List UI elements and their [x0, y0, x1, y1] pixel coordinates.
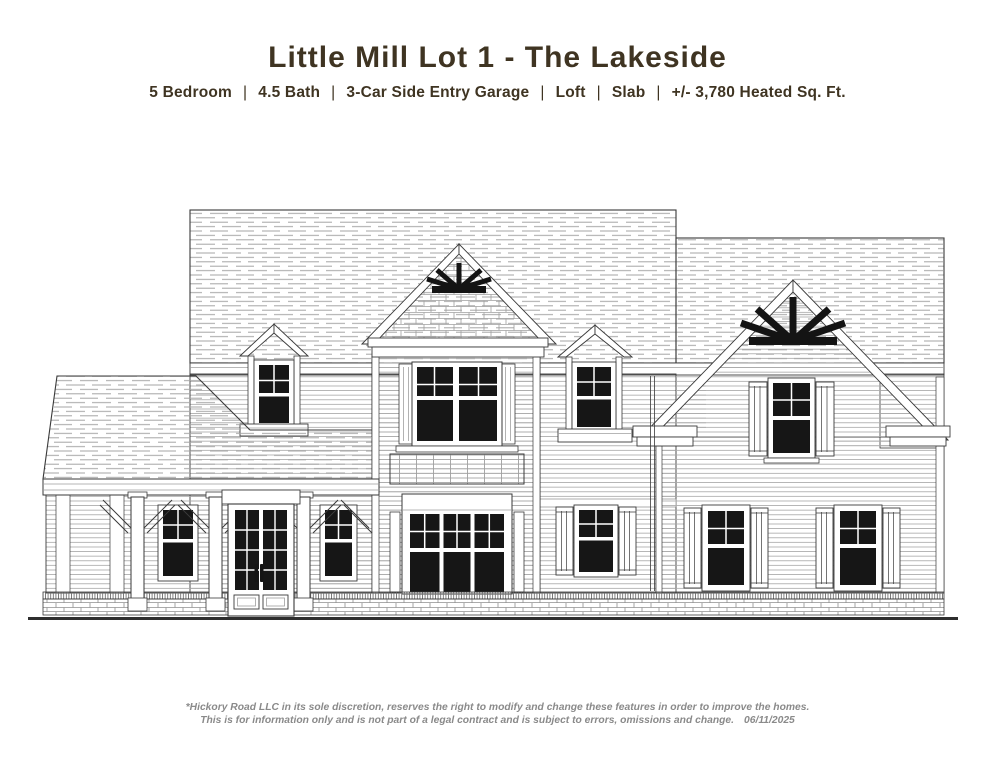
house-front-elevation — [0, 0, 995, 768]
cornice-band — [372, 347, 544, 357]
porch-window-right — [320, 505, 357, 581]
shutter — [556, 507, 573, 575]
revision-date: 06/11/2025 — [744, 715, 795, 726]
shutter — [684, 508, 701, 588]
dormer-window — [572, 362, 616, 432]
middle-window — [556, 505, 636, 577]
lower-triple-window — [390, 494, 524, 594]
dormer-window — [254, 360, 294, 428]
gable-window — [749, 378, 834, 463]
disclaimer-line-2: This is for information only and is not … — [0, 714, 995, 727]
elevation-sheet: Little Mill Lot 1 - The Lakeside 5 Bedro… — [0, 0, 995, 768]
eave-return — [886, 426, 950, 446]
front-door — [222, 490, 300, 616]
porch-post — [128, 492, 147, 611]
shutter — [751, 508, 768, 588]
garage-window-right — [816, 505, 900, 591]
cornice-band — [368, 338, 548, 347]
shutter — [749, 382, 767, 456]
disclaimer-line-1: *Hickory Road LLC in its sole discretion… — [0, 701, 995, 714]
shutter — [883, 508, 900, 588]
door-handle — [260, 564, 264, 582]
garage-window-left — [684, 505, 768, 591]
upper-double-window — [396, 362, 518, 452]
porch-post — [206, 492, 225, 611]
shutter — [816, 382, 834, 456]
eave-return — [633, 426, 697, 446]
shutter — [816, 508, 833, 588]
door-handle — [255, 564, 259, 582]
porch-post — [294, 492, 313, 611]
shutter — [619, 507, 636, 575]
brick-foundation — [43, 592, 944, 615]
sheet-footer: *Hickory Road LLC in its sole discretion… — [0, 701, 995, 728]
frieze-panel — [390, 454, 524, 484]
